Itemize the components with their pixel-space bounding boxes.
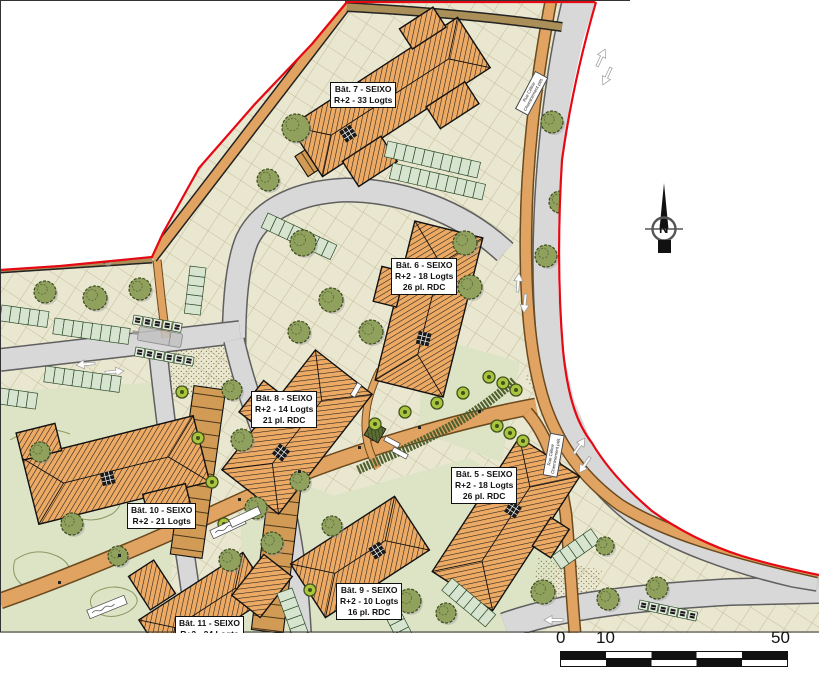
label-bat-8: Bât. 8 - SEIXOR+2 - 14 Logts21 pl. RDC [251, 391, 317, 428]
label-layer: Bât. 7 - SEIXOR+2 - 33 Logts Bât. 6 - SE… [0, 0, 819, 633]
scale-label-10: 10 [596, 628, 615, 648]
scale-label-0: 0 [556, 628, 565, 648]
label-bat-10: Bât. 10 - SEIXOR+2 - 21 Logts [127, 503, 196, 529]
label-bat-9: Bât. 9 - SEIXOR+2 - 10 Logts16 pl. RDC [336, 583, 402, 620]
scale-bar-row-top [560, 651, 788, 659]
label-bat-11: Bât. 11 - SEIXOR+2 - 24 Logts [175, 616, 244, 633]
street-label-1: Rue CélineCheminement piét. [515, 71, 548, 116]
label-bat-7: Bât. 7 - SEIXOR+2 - 33 Logts [330, 82, 396, 108]
scale-label-50: 50 [771, 628, 790, 648]
label-bat-5: Bât. 5 - SEIXOR+2 - 18 Logts26 pl. RDC [451, 467, 517, 504]
site-plan-canvas: Bât. 7 - SEIXOR+2 - 33 Logts Bât. 6 - SE… [0, 0, 819, 676]
street-label-2: Rue CélineCheminement piét. [543, 433, 565, 478]
scale-bar-row-bottom [560, 659, 788, 667]
label-bat-6: Bât. 6 - SEIXOR+2 - 18 Logts26 pl. RDC [391, 258, 457, 295]
north-arrow-letter: N [659, 221, 668, 236]
